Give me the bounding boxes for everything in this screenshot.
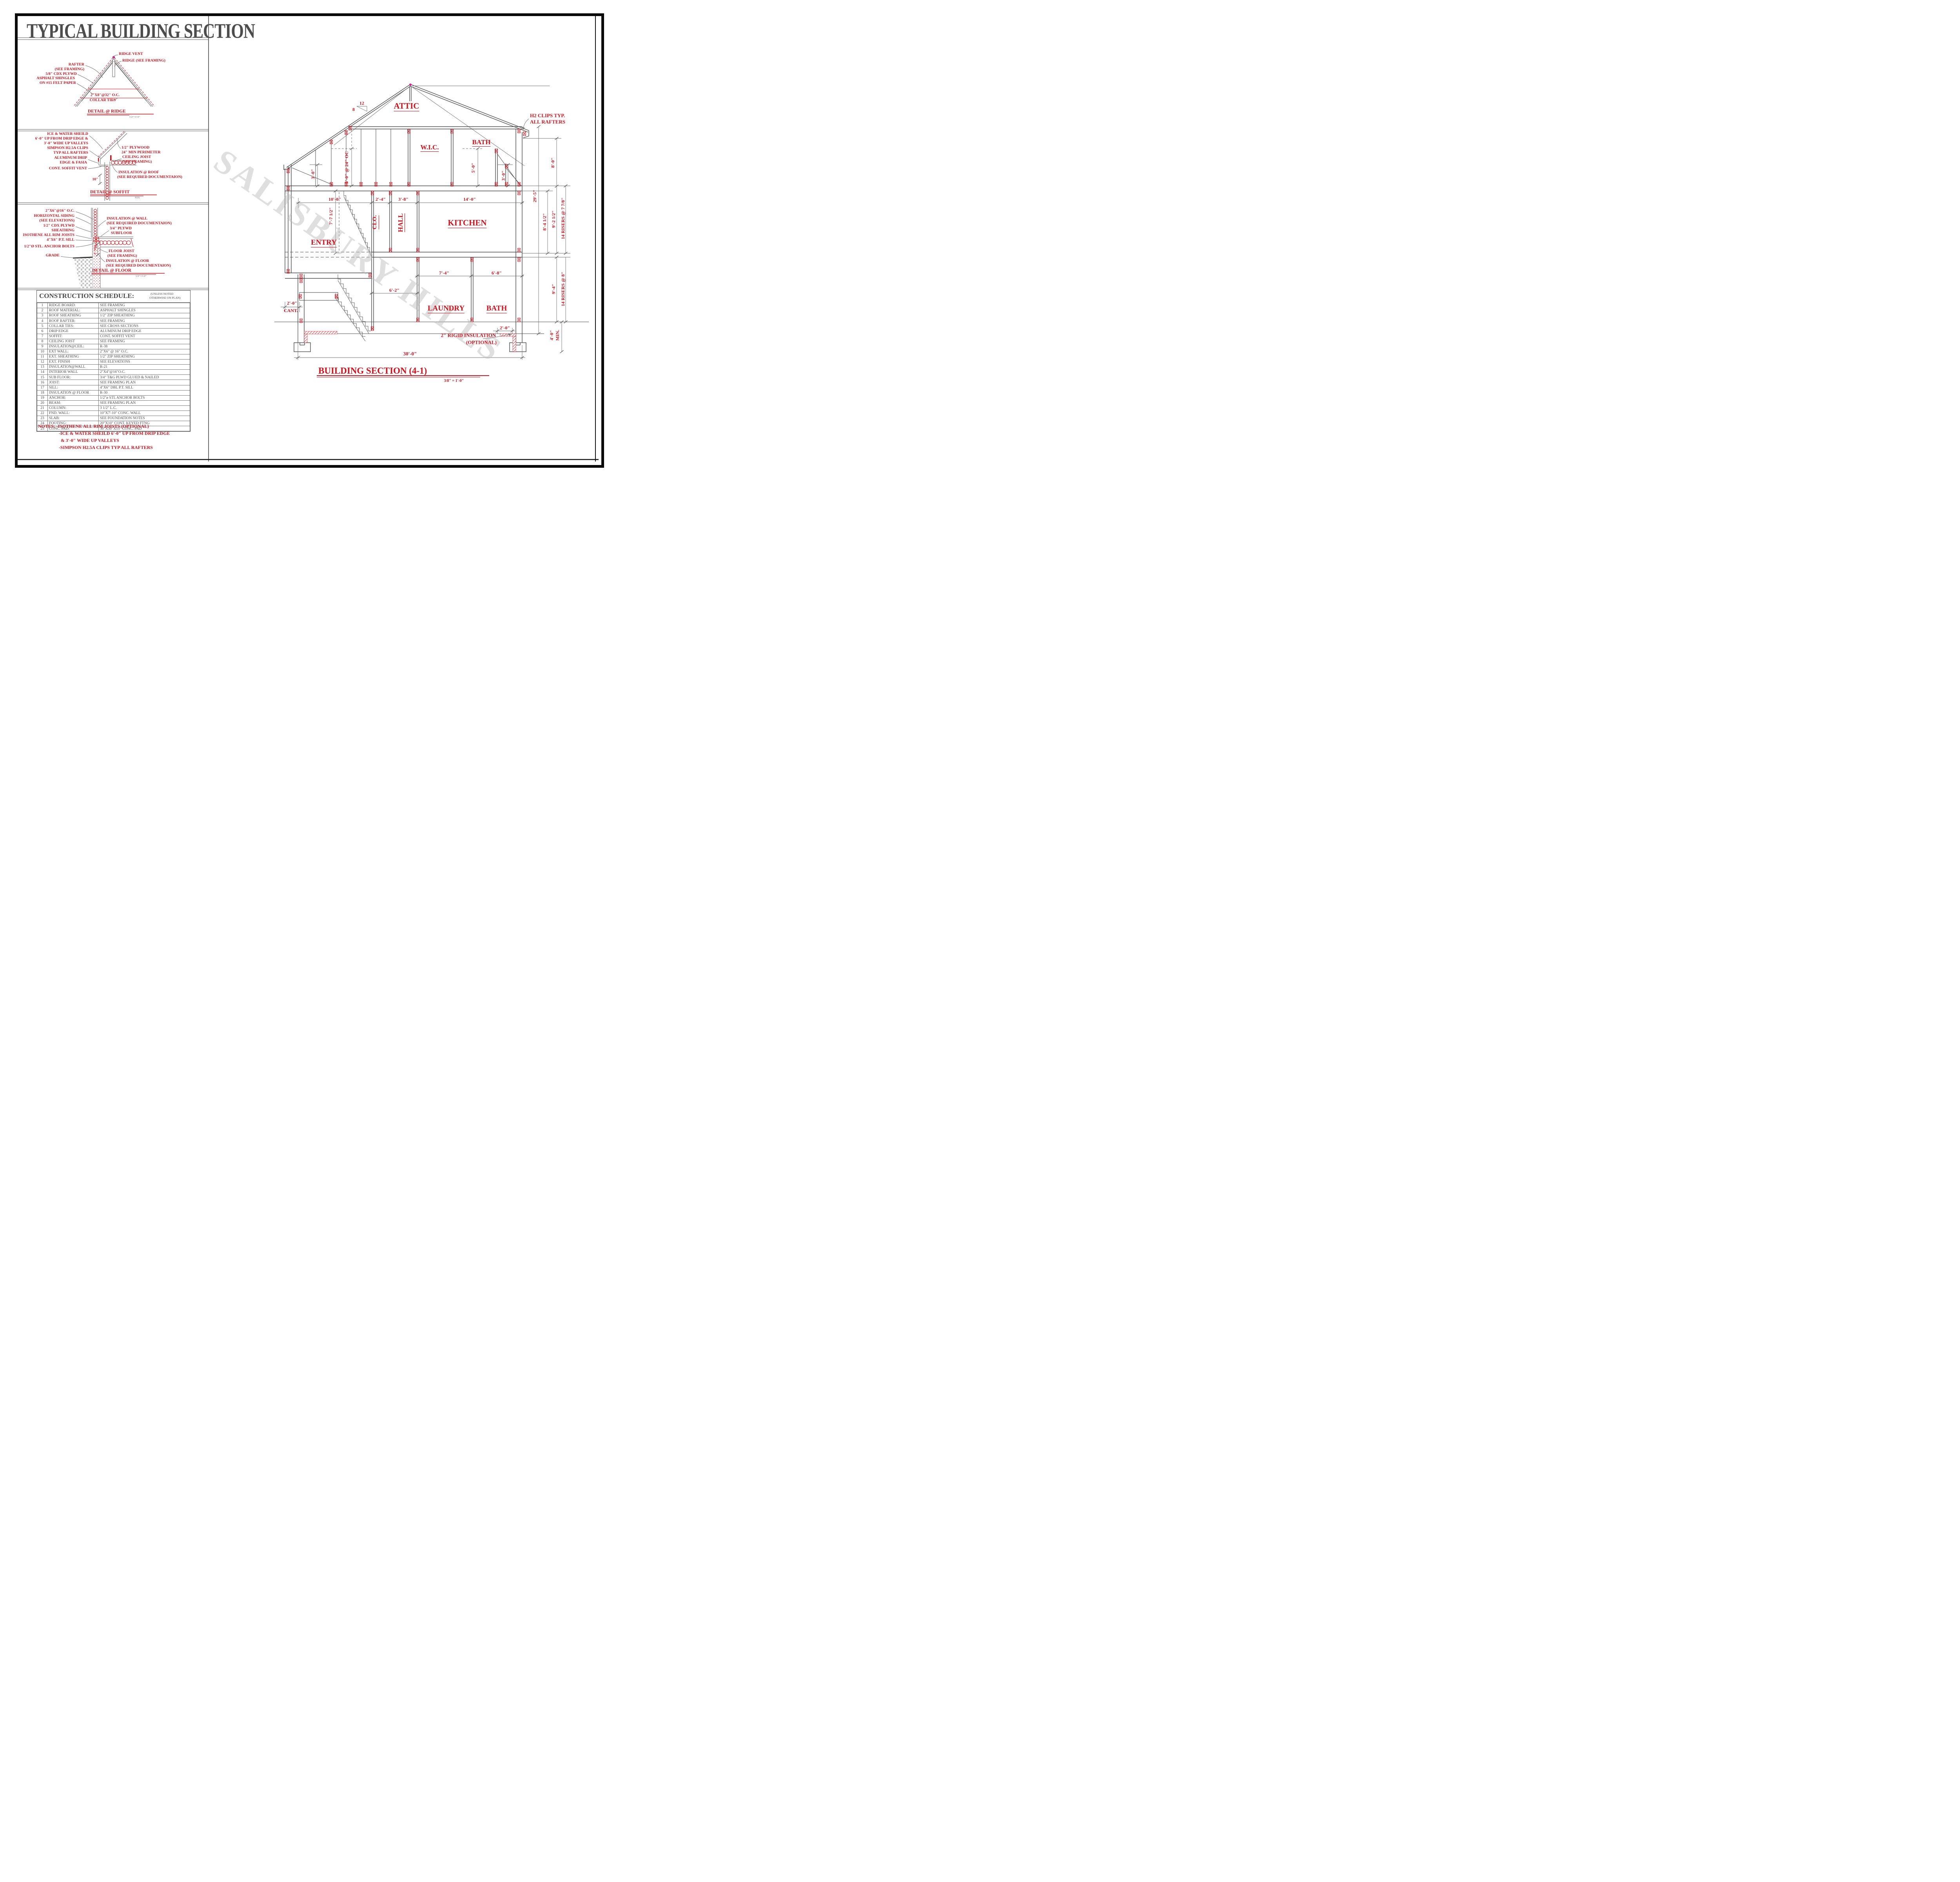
subfloor-label-2: SUBFLOOR <box>111 231 132 235</box>
row-item: ROOF SHEATHING <box>48 313 99 318</box>
room-label-bath-lower: BATH <box>486 305 507 313</box>
row-item: INSULATION@CEIL: <box>48 344 99 349</box>
row-num: 7 <box>37 334 48 339</box>
room-label-kitchen: KITCHEN <box>448 219 486 228</box>
schedule-row: 10EXT WALL:2"X6" @ 16" O.C. <box>37 349 190 354</box>
row-num: 12 <box>37 360 48 365</box>
row-item: INTERIOR WALL <box>48 370 99 375</box>
row-spec: R-38 <box>99 344 190 349</box>
row-item: DRIP EDGE <box>48 329 99 334</box>
pt-sill-label: 4"X6" P.T. SILL <box>47 238 74 242</box>
row-spec: SEE FRAMING <box>99 318 190 323</box>
schedule-row: 19ANCHOR:1/2"ø STL ANCHOR BOLTS <box>37 395 190 400</box>
row-num: 2 <box>37 308 48 313</box>
row-spec: 3/4" T&G PLWD GLUED & NAILED <box>99 375 190 380</box>
siding-label-2: (SEE ELEVATIONS) <box>39 219 74 223</box>
collar-ties-label-2: COLLAR TIES <box>90 98 116 102</box>
room-label-entry: ENTRY <box>311 239 337 247</box>
floor-detail-scale: 1/2"=1'-0" <box>136 275 146 278</box>
construction-schedule-table: 1RIDGE BOARD:SEE FRAMING 2ROOF MATERIAL:… <box>37 303 190 431</box>
siding-label-1: HORIZONTAL SIDING <box>34 214 74 218</box>
h2-clips-label-1: H2 CLIPS TYP. <box>530 113 565 118</box>
row-spec: 2"X4"@16"O.C. <box>99 370 190 375</box>
notes-line-1: NOTES: -ISOTHENE ALL RIM JOISTS (OPTIONA… <box>38 424 149 429</box>
schedule-title: CONSTRUCTION SCHEDULE: <box>39 292 134 300</box>
cdx-plywd-label: 5/8" CDX PLYWD <box>45 72 77 76</box>
row-item: SILL: <box>48 385 99 390</box>
row-num: 17 <box>37 385 48 390</box>
rigid-insulation-label-2: (OPTIONAL) <box>466 340 497 345</box>
dim-14-0: 14'-0" <box>463 197 476 202</box>
dim-14-risers-778: 14 RISERS @ 7 7/8" <box>561 198 565 240</box>
schedule-row: 5COLLAR TIES:SEE CROSS SECTIONS <box>37 323 190 329</box>
dim-3-0-right: 3'-0" <box>501 171 506 181</box>
schedule-row: 21COLUMN:3 1/2" L.C. <box>37 405 190 411</box>
dim-14-risers-8: 14 RISERS @ 8" <box>561 272 565 306</box>
row-num: 18 <box>37 390 48 395</box>
row-spec: 4"X6" DBL P.T. SILL <box>99 385 190 390</box>
plywood-label-1: 1/2" PLYWOOD <box>122 146 149 150</box>
row-item: ROOF RAFTER: <box>48 318 99 323</box>
dim-5-0-24oc: 5'-0" @ 24" OC <box>344 151 349 184</box>
notes-line-4: -SIMPSON H2.5A CLIPS TYP ALL RAFTERS <box>59 445 153 450</box>
row-item: COLUMN: <box>48 405 99 411</box>
dim-3-0-left: 3'-0" <box>310 169 315 179</box>
row-num: 19 <box>37 395 48 400</box>
room-label-attic: ATTIC <box>394 102 419 111</box>
cdx-sheathing-label-1: 1/2" CDX PLYWD <box>43 224 74 228</box>
dim-6-2: 6'-2" <box>389 288 399 292</box>
row-item: ANCHOR: <box>48 395 99 400</box>
sheet-title: TYPICAL BUILDING SECTION <box>27 19 255 43</box>
isothene-label: ISOTHENE ALL RIM JOISTS <box>23 233 75 237</box>
row-item: SLAB: <box>48 416 99 421</box>
dim-9-2-half: 9'-2 1/2" <box>551 211 556 228</box>
anchor-bolts-label: 1/2"Ø STL. ANCHOR BOLTS <box>24 245 74 249</box>
row-num: 10 <box>37 349 48 354</box>
schedule-row: 20BEAM:SEE FRAMING PLAN <box>37 400 190 405</box>
ridge-detail-scale: 1/2"=1'-0" <box>129 116 140 118</box>
row-spec: ASPHALT SHINGLES <box>99 308 190 313</box>
rigid-insulation-label-1: 2" RIGID INSULATION <box>441 333 496 338</box>
slope-run-label: 12 <box>359 101 364 105</box>
schedule-row: 4ROOF RAFTER:SEE FRAMING <box>37 318 190 323</box>
row-num: 3 <box>37 313 48 318</box>
collar-ties-label-1: 2"X8"@32" O.C. <box>91 93 120 97</box>
soffit-detail-title: DETAIL @ SOFFIT <box>90 190 130 194</box>
row-item: EXT. SHEATHING <box>48 354 99 359</box>
cdx-sheathing-label-2: SHEATHING <box>51 229 74 233</box>
schedule-row: 3ROOF SHEATHING1/2" ZIP SHEATHING <box>37 313 190 318</box>
construction-schedule: CONSTRUCTION SCHEDULE: (UNLESS NOTED OTH… <box>36 290 191 432</box>
row-num: 1 <box>37 303 48 308</box>
row-spec: 3 1/2" L.C. <box>99 405 190 411</box>
notes-line-3: & 3'-0" WIDE UP VALLEYS <box>61 438 119 443</box>
dim-8-0: 8'-0" <box>550 158 555 168</box>
row-num: 20 <box>37 400 48 405</box>
ridge-framing-label: RIDGE (SEE FRAMING) <box>122 59 165 63</box>
dim-6-8: 6'-8" <box>492 271 502 275</box>
schedule-row: 16JOIST:SEE FRAMING PLAN <box>37 380 190 385</box>
notes-line-2: -ICE & WATER SHEILD 6'-0" UP FROM DRIP E… <box>59 431 170 436</box>
row-num: 15 <box>37 375 48 380</box>
row-spec: SEE ELEVATIONS <box>99 360 190 365</box>
drawing-sheet: SALISBURY HILLS TYPICAL BUILDING SECTION… <box>0 0 624 470</box>
dim-30-0: 30'-0" <box>403 351 417 356</box>
row-spec: SEE FRAMING PLAN <box>99 400 190 405</box>
dim-9-4: 9'-4" <box>551 284 556 294</box>
schedule-row: 22FND. WALL:10"X7'-10" CONC. WALL <box>37 411 190 416</box>
schedule-header: CONSTRUCTION SCHEDULE: (UNLESS NOTED OTH… <box>37 291 190 303</box>
subfloor-label-1: 3/4" PLYWD <box>110 227 132 231</box>
row-num: 13 <box>37 365 48 370</box>
row-num: 23 <box>37 416 48 421</box>
row-item: COLLAR TIES: <box>48 323 99 329</box>
row-num: 9 <box>37 344 48 349</box>
dim-2-4: 2'-4" <box>376 197 386 202</box>
dim-2-0-right: 2'-0" <box>500 325 510 330</box>
row-item: CEILING JOIST <box>48 339 99 344</box>
iws-label-3: 3'-0" WIDE UP VALLEYS <box>44 142 88 145</box>
iws-label-2: 6'-0" UP FROM DRIP EDGE & <box>35 137 88 141</box>
row-spec: CONT. SOFFIT VENT <box>99 334 190 339</box>
dim-3-8: 3'-8" <box>398 197 408 202</box>
schedule-row: 2ROOF MATERIAL:ASPHALT SHINGLES <box>37 308 190 313</box>
row-spec: 1/2" ZIP SHEATHING <box>99 313 190 318</box>
roof-insulation-label-1: INSULATION @ ROOF <box>118 171 159 174</box>
row-num: 16 <box>37 380 48 385</box>
room-label-clo: CLO. <box>372 215 379 229</box>
row-num: 5 <box>37 323 48 329</box>
row-item: SOFFIT: <box>48 334 99 339</box>
row-item: JOIST: <box>48 380 99 385</box>
room-label-laundry: LAUNDRY <box>428 305 465 313</box>
wall-insulation-label-2: (SEE REQUIRED DOCUMENTAION) <box>107 222 172 225</box>
eight-min-dim: 8" MIN. <box>94 244 97 254</box>
row-spec: SEE CROSS SECTIONS <box>99 323 190 329</box>
dim-5-0-right: 5'-0" <box>471 163 475 173</box>
rafter-label-1: RAFTER <box>69 63 84 67</box>
schedule-row: 17SILL:4"X6" DBL P.T. SILL <box>37 385 190 390</box>
section-scale: 3/8" = 1'-0" <box>444 379 464 383</box>
simpson-clips-label-1: SIMPSON H2.5A CLIPS <box>47 146 88 150</box>
row-item: EXT WALL: <box>48 349 99 354</box>
row-item: INSULATION@WALL <box>48 365 99 370</box>
dim-7-7-half: 7'-7 1/2" <box>328 207 333 225</box>
row-item: EXT. FINISH <box>48 360 99 365</box>
schedule-row: 1RIDGE BOARD:SEE FRAMING <box>37 303 190 308</box>
room-label-hall: HALL <box>397 213 405 232</box>
cant-text-label: CANT. <box>284 308 298 313</box>
room-label-bath-upper: BATH <box>472 139 491 147</box>
row-num: 22 <box>37 411 48 416</box>
ridge-detail-title: DETAIL @ RIDGE <box>88 109 126 114</box>
row-spec: R-21 <box>99 365 190 370</box>
wall-insulation-label-1: INSULATION @ WALL <box>107 217 147 221</box>
row-item: INSULATION @ FLOOR <box>48 390 99 395</box>
dim-4-0: 4'-0" <box>549 330 554 340</box>
row-spec: 1/2"ø STL ANCHOR BOLTS <box>99 395 190 400</box>
schedule-row: 18INSULATION @ FLOORR-30 <box>37 390 190 395</box>
schedule-row: 11EXT. SHEATHING1/2" ZIP SHEATHING <box>37 354 190 359</box>
ceiling-joist-label-1: CEILING JOIST <box>122 155 151 159</box>
slope-rise-label: 8 <box>352 107 355 112</box>
row-item: FND. WALL: <box>48 411 99 416</box>
row-num: 11 <box>37 354 48 359</box>
schedule-row: 7SOFFIT:CONT. SOFFIT VENT <box>37 334 190 339</box>
iws-label-1: ICE & WATER SHEILD <box>47 132 88 136</box>
ridge-vent-label: RIDGE VENT <box>119 52 143 56</box>
row-item: RIDGE BOARD: <box>48 303 99 308</box>
row-spec: SEE FOUNDATION NOTES <box>99 416 190 421</box>
floor-insulation-label-2: (SEE REQUIRED DOCUMENTAION) <box>106 264 171 268</box>
schedule-row: 13INSULATION@WALLR-21 <box>37 365 190 370</box>
row-spec: SEE FRAMING PLAN <box>99 380 190 385</box>
room-label-wic: W.I.C. <box>420 144 439 152</box>
simpson-clips-label-2: TYP ALL RAFTERS <box>53 151 88 155</box>
schedule-row: 23SLAB:SEE FOUNDATION NOTES <box>37 416 190 421</box>
section-title: BUILDING SECTION (4-1) <box>318 366 427 376</box>
schedule-qualifier-2: OTHERWISE ON PLAN) <box>149 296 181 300</box>
floor-detail-title: DETAIL @ FLOOR <box>92 268 131 273</box>
row-num: 21 <box>37 405 48 411</box>
drip-edge-label-2: EDGE & FASIA <box>60 161 87 165</box>
soffit-detail-scale: NTS <box>135 196 140 199</box>
row-spec: 10"X7'-10" CONC. WALL <box>99 411 190 416</box>
row-spec: 2"X6" @ 16" O.C. <box>99 349 190 354</box>
row-item: SUB FLOOR: <box>48 375 99 380</box>
row-num: 8 <box>37 339 48 344</box>
soffit-vent-label: CONT. SOFFIT VENT <box>49 167 87 171</box>
dim-7-4: 7'-4" <box>439 271 449 275</box>
roof-insulation-label-2: (SEE REQUIRED DOCUMENTAION) <box>117 175 182 179</box>
h2-clips-label-2: ALL RAFTERS <box>530 119 565 124</box>
floor-joist-label-1: FLOOR JOIST <box>109 249 134 253</box>
stud-oc-label: 2"X6"@16" O.C. <box>45 209 74 213</box>
schedule-row: 9INSULATION@CEIL:R-38 <box>37 344 190 349</box>
row-spec: SEE FRAMING <box>99 303 190 308</box>
asphalt-shingles-label: ASPHALT SHINGLES <box>36 76 75 80</box>
schedule-row: 14INTERIOR WALL2"X4"@16"O.C. <box>37 370 190 375</box>
row-item: BEAM: <box>48 400 99 405</box>
dim-8-4-half: 8'-4 1/2" <box>542 213 547 231</box>
row-num: 14 <box>37 370 48 375</box>
floor-insulation-label-1: INSULATION @ FLOOR <box>106 259 149 263</box>
row-spec: ALUMINUM DRIP EDGE <box>99 329 190 334</box>
grade-label: GRADE <box>46 254 60 258</box>
row-num: 6 <box>37 329 48 334</box>
schedule-row: 8CEILING JOISTSEE FRAMING <box>37 339 190 344</box>
felt-paper-label: ON #15 FELT PAPER <box>40 81 76 85</box>
row-spec: R-30 <box>99 390 190 395</box>
schedule-row: 15SUB FLOOR:3/4" T&G PLWD GLUED & NAILED <box>37 375 190 380</box>
row-num: 4 <box>37 318 48 323</box>
row-item: ROOF MATERIAL: <box>48 308 99 313</box>
dim-29-5: 29'-5" <box>532 190 537 202</box>
dim-4-0-min: MIN. <box>555 330 560 341</box>
schedule-row: 6DRIP EDGEALUMINUM DRIP EDGE <box>37 329 190 334</box>
drip-edge-label-1: ALUMINUM DRIP <box>54 156 87 160</box>
ceiling-joist-label-2: (SEE FRAMING) <box>122 160 152 164</box>
cant-dim-label: 2'-0" <box>287 301 297 305</box>
plywood-label-2: 24" MIN PERIMETER <box>122 151 161 154</box>
schedule-qualifier-1: (UNLESS NOTED <box>151 292 173 296</box>
floor-joist-label-2: (SEE FRAMING) <box>107 254 137 258</box>
schedule-row: 12EXT. FINISHSEE ELEVATIONS <box>37 360 190 365</box>
ten-inch-dim: 10" <box>92 178 98 182</box>
row-spec: SEE FRAMING <box>99 339 190 344</box>
dim-10-0: 10'-0" <box>328 197 341 202</box>
rafter-label-2: (SEE FRAMING) <box>55 67 84 71</box>
row-spec: 1/2" ZIP SHEATHING <box>99 354 190 359</box>
